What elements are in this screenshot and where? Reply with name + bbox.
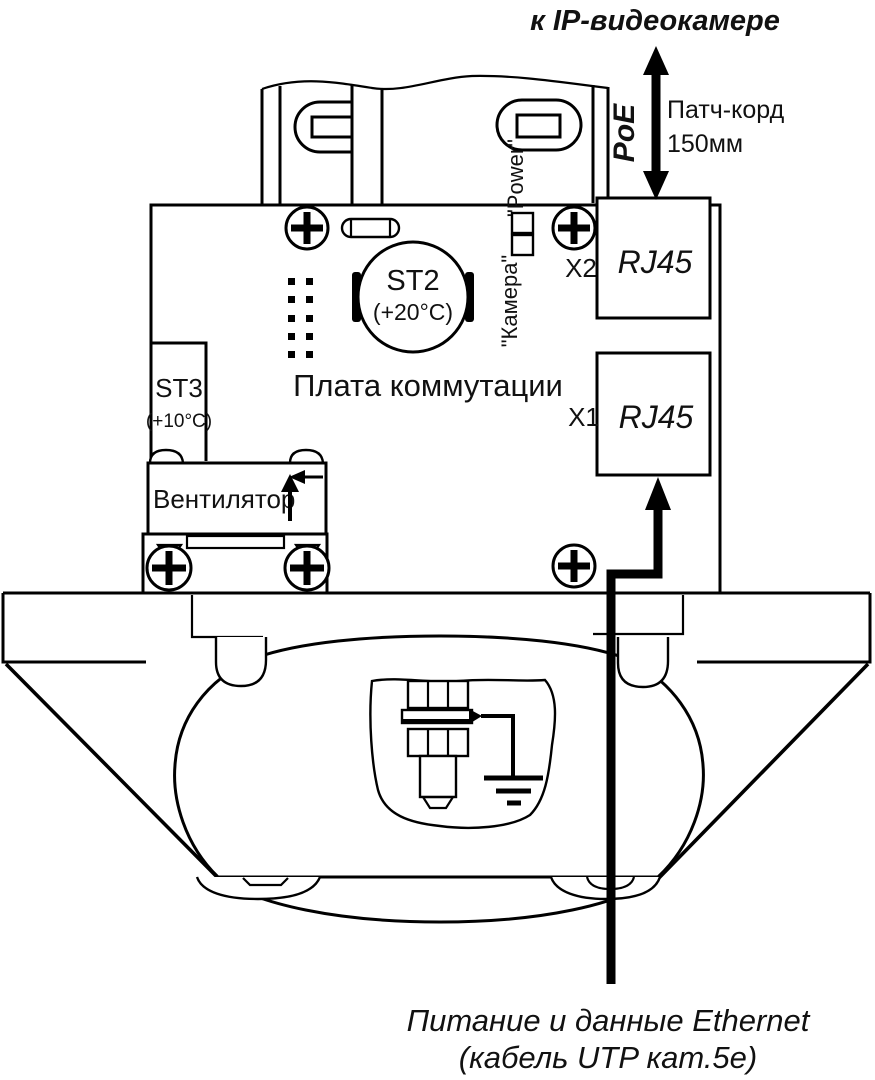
screw-icon	[286, 207, 328, 249]
cable-arrowhead	[645, 477, 671, 510]
bottom-label-1: Питание и данные Ethernet	[407, 1003, 811, 1038]
power-led-icon	[512, 213, 533, 233]
housing-tab-left	[216, 637, 266, 686]
bolt-shaft	[420, 756, 456, 797]
pin-header	[288, 278, 313, 358]
capsule-component	[342, 219, 399, 237]
connector-x1-label: X1	[568, 402, 600, 432]
led-indicators: "Power" "Камера"	[497, 139, 533, 347]
board-title: Плата коммутации	[293, 368, 563, 403]
st2-sensor: ST2 (+20°C)	[352, 242, 474, 352]
bracket-slot-left	[295, 102, 352, 152]
wiring-diagram: ST2 (+20°C) Плата коммутации "Power" "Ка…	[0, 0, 875, 1080]
patch-cord-label-2: 150мм	[667, 130, 743, 158]
plate-right-edge	[697, 593, 870, 662]
top-label: к IP-видеокамере	[530, 5, 780, 37]
rj45-x1: RJ45 X1	[568, 353, 710, 475]
st2-body	[358, 242, 468, 352]
poe-arrowhead-up	[643, 46, 669, 75]
housing-tab-right	[618, 637, 668, 687]
fan-bump-left	[150, 450, 183, 463]
screw-icon	[553, 545, 595, 587]
fan-bump-right	[290, 450, 323, 463]
st3-temp-label: (+10°C)	[146, 411, 212, 432]
diagram-canvas: ST2 (+20°C) Плата коммутации "Power" "Ка…	[0, 0, 875, 1080]
bracket-break-wave	[262, 76, 608, 89]
plate-step-left	[192, 595, 263, 637]
poe-arrow	[643, 46, 669, 200]
screw-icon	[147, 546, 191, 590]
bolt-nut-top	[408, 681, 468, 708]
st3-label: ST3	[155, 373, 203, 403]
fan-label: Вентилятор	[153, 484, 295, 514]
power-led-label: "Power"	[503, 139, 528, 217]
rj45-x1-label: RJ45	[619, 399, 694, 435]
camera-led-icon	[512, 235, 533, 255]
poe-label: PoE	[608, 103, 641, 162]
camera-led-label: "Камера"	[497, 255, 522, 348]
bracket-slot-left-window	[312, 117, 352, 137]
patch-cord-label-1: Патч-корд	[667, 96, 785, 124]
connector-x2-label: X2	[565, 253, 597, 283]
bottom-label-2: (кабель UTP кат.5е)	[459, 1040, 757, 1075]
plate-left-edge	[3, 593, 146, 662]
ground-bolt-detail	[370, 679, 555, 828]
st3-sensor: ST3 (+10°C)	[146, 343, 212, 461]
mounting-bracket	[262, 76, 608, 205]
poe-arrowhead-down	[643, 171, 669, 200]
bracket-slot-right-window	[517, 115, 560, 137]
st2-temp-label: (+20°C)	[373, 299, 453, 325]
st2-label: ST2	[386, 265, 439, 297]
rj45-x2-label: RJ45	[618, 244, 693, 280]
screw-icon	[285, 546, 329, 590]
screw-icon	[553, 207, 595, 249]
switch-board: ST2 (+20°C) Плата коммутации "Power" "Ка…	[143, 139, 720, 593]
fan-assembly: Вентилятор	[143, 450, 329, 593]
bolt-nut-bottom	[408, 729, 468, 756]
